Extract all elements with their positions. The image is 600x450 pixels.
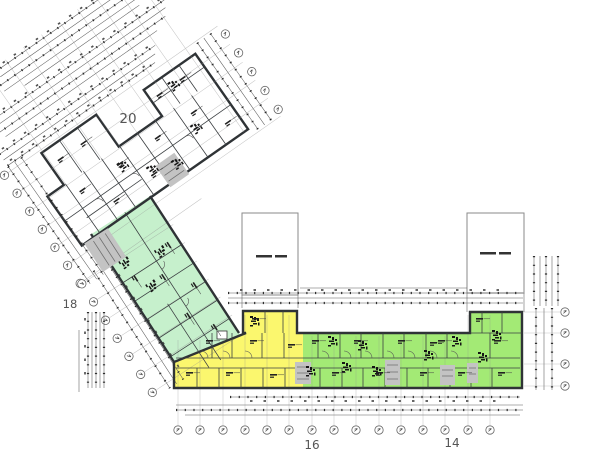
wing-18-label: 18 [63, 297, 78, 311]
grid-markers-wing20-left [0, 169, 86, 289]
wing-20-label: 20 [119, 111, 136, 127]
stair-core [440, 365, 455, 385]
stair-core [385, 360, 400, 385]
wing-14-label: 14 [444, 436, 459, 450]
floor-plan-drawing: 20 18 16 14 [0, 0, 600, 450]
wing-16-label: 16 [304, 438, 319, 450]
floor-plan-page: 20 18 16 14 [0, 0, 600, 450]
courtyard-edge-extensions [242, 293, 524, 312]
courtyard-left [242, 213, 298, 295]
grid-markers-right [561, 308, 569, 390]
grid-markers-bottom [174, 426, 494, 434]
